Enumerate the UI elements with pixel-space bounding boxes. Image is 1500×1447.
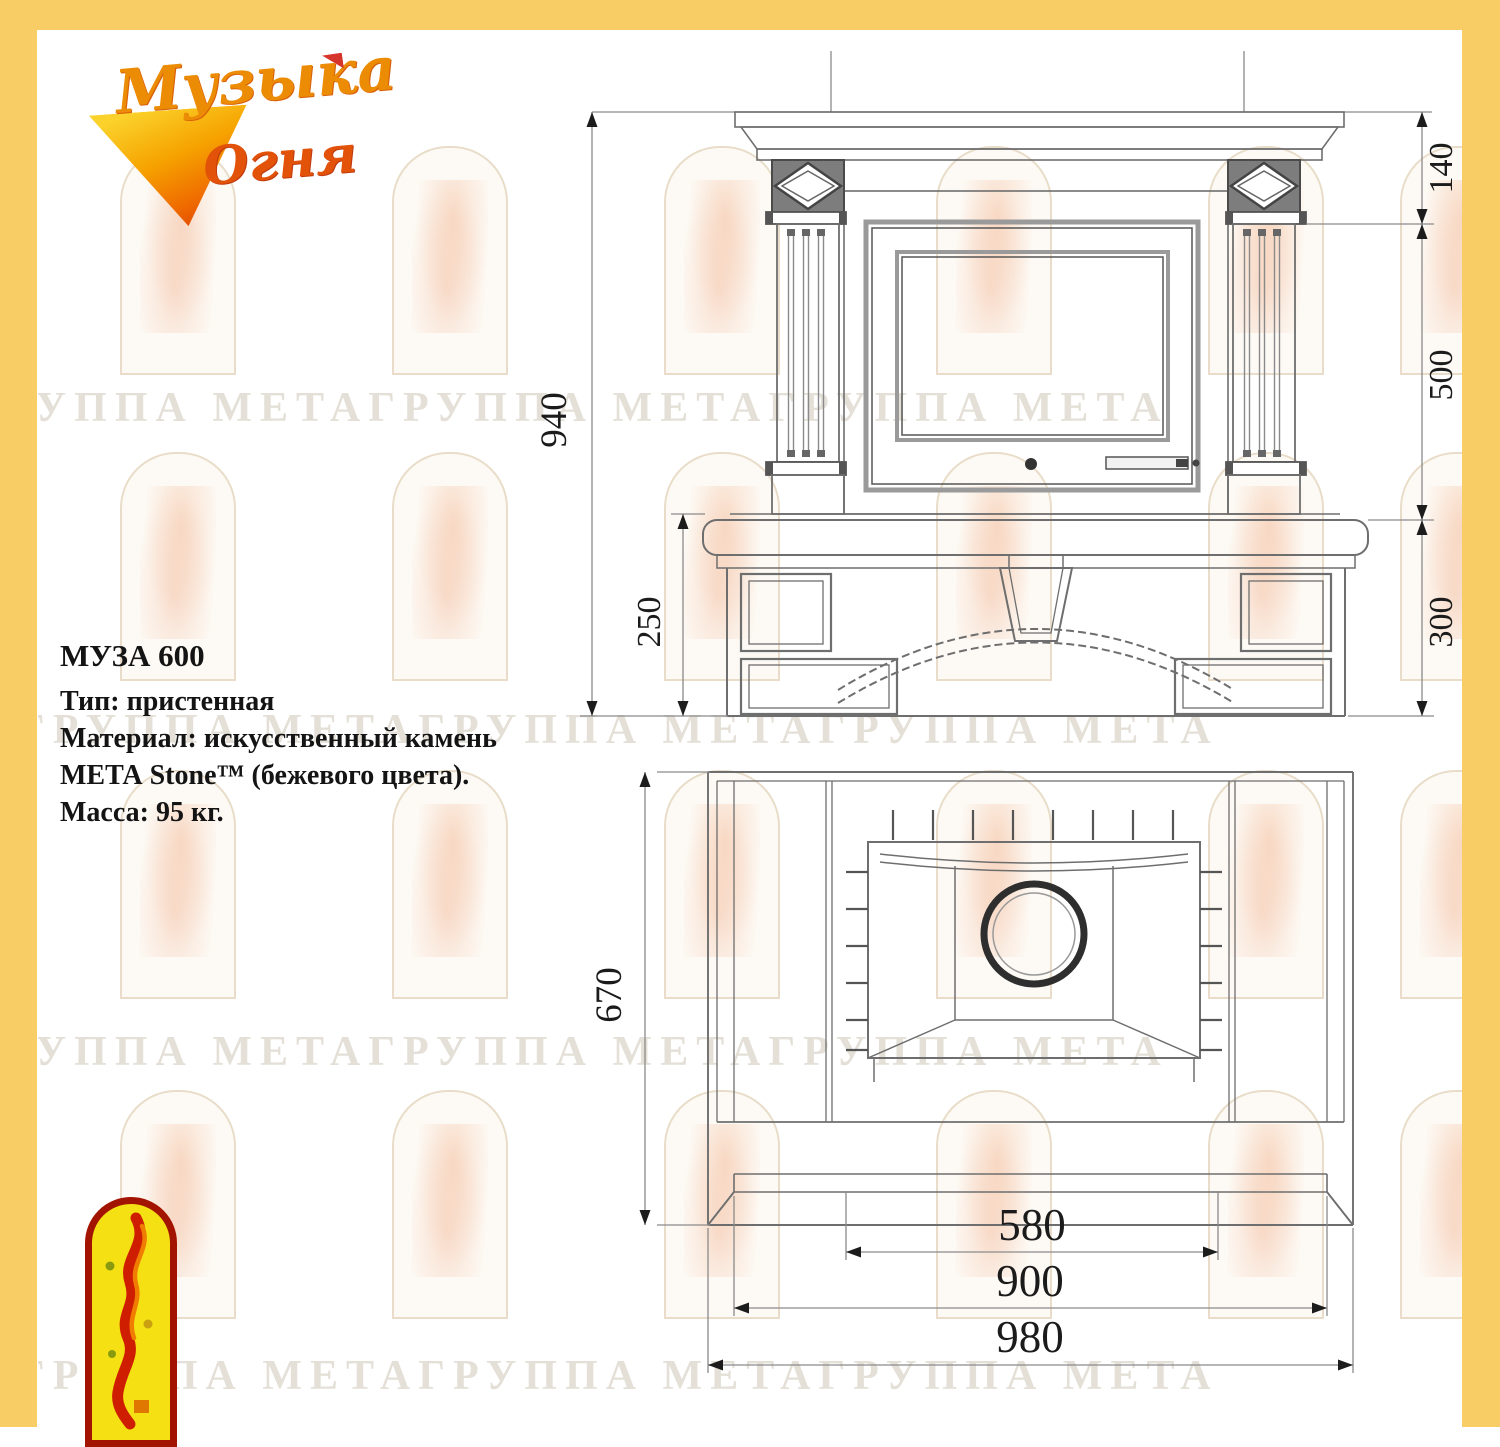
door-handle xyxy=(1106,457,1188,469)
dim-label-total-height: 940 xyxy=(534,392,575,448)
plan-firebox xyxy=(846,810,1222,1082)
brand-logo: Музыка Огня xyxy=(55,38,375,238)
plan-view-drawing xyxy=(708,772,1353,1225)
page-border-left xyxy=(0,0,37,1427)
arch-emblem xyxy=(85,1197,177,1447)
door-glass xyxy=(897,252,1168,440)
right-column xyxy=(1226,160,1306,514)
dim-label-mantel-height: 140 xyxy=(1423,143,1460,194)
dim-label-depth: 670 xyxy=(589,967,630,1023)
door-knob xyxy=(1025,458,1037,470)
dim-label-body-width: 900 xyxy=(996,1256,1064,1306)
vent-ticks-right xyxy=(1200,872,1222,1050)
dim-label-total-width: 980 xyxy=(996,1312,1064,1362)
spec-material-2: МЕТА Stone™ (бежевого цвета). xyxy=(60,757,650,794)
vent-ticks-top xyxy=(893,810,1173,840)
page-border-top xyxy=(0,0,1500,30)
flue-outlet xyxy=(984,884,1084,984)
base-section xyxy=(727,556,1345,716)
brand-name-line1: Музыка xyxy=(112,34,398,128)
page-border-right xyxy=(1462,0,1500,1427)
plan-right-column xyxy=(1229,781,1327,1122)
vent-ticks-left xyxy=(846,872,868,1050)
product-specs: МУЗА 600 Тип: пристенная Материал: искус… xyxy=(60,638,650,831)
firebox-door xyxy=(866,222,1200,490)
product-title: МУЗА 600 xyxy=(60,638,650,674)
front-view-drawing xyxy=(592,51,1432,716)
plan-left-column xyxy=(734,781,832,1122)
dimension-labels: 940 250 140 500 300 670 580 900 980 xyxy=(534,143,1460,1363)
spec-type: Тип: пристенная xyxy=(60,683,650,720)
dimension-arrows xyxy=(587,112,1428,1371)
mantel-shelf xyxy=(735,112,1344,160)
flame-figure-icon xyxy=(92,1204,170,1440)
spec-mass: Масса: 95 кг. xyxy=(60,794,650,831)
left-column xyxy=(766,160,846,514)
dim-label-opening-width: 580 xyxy=(998,1200,1066,1250)
spec-material-1: Материал: искусственный камень xyxy=(60,720,650,757)
dim-label-base-height: 300 xyxy=(1423,597,1460,648)
brand-name-line2: Огня xyxy=(201,123,360,197)
hearth-shelf xyxy=(703,514,1368,568)
dim-label-firebox-height: 500 xyxy=(1423,350,1460,401)
